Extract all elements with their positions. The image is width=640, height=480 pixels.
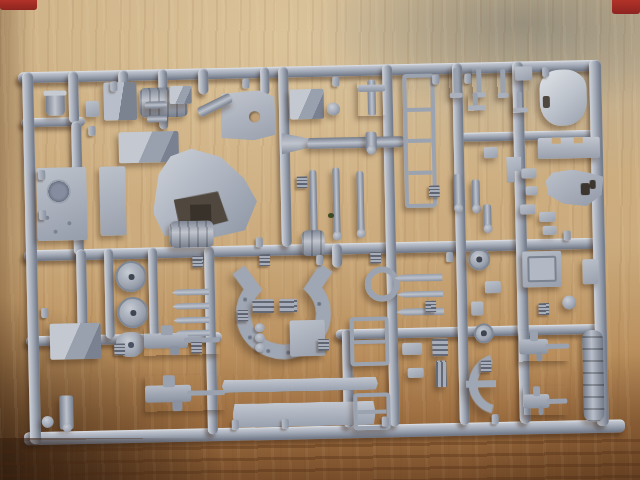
ejector-tab [318, 339, 329, 351]
sprue-gate-nub [41, 308, 48, 318]
runner-e-stub [260, 67, 270, 95]
cradle-hole [590, 180, 596, 189]
rod-knob [357, 229, 366, 238]
gun-body [145, 385, 192, 403]
ejector-tab [237, 309, 248, 321]
sprue-part-thin-rod-a [453, 174, 463, 210]
wheel-hub [481, 330, 487, 336]
sprue-part-bit-6 [402, 343, 422, 355]
top-rail [18, 60, 598, 84]
gun-magazine [160, 325, 172, 335]
sprue-part-bit-3 [520, 204, 535, 214]
sprue-part-road-wheel-1 [115, 261, 147, 293]
sprue-part-thin-rod-b [472, 179, 481, 210]
sprue-part-bit-1 [521, 168, 536, 178]
rod-knob [483, 224, 492, 233]
hook-horizontal [468, 105, 486, 110]
rod-knob [333, 231, 342, 240]
sprue-part-hook-3 [497, 69, 509, 98]
sprue-part-knob-disc [327, 102, 340, 115]
sprue-part-rib-drum [169, 220, 214, 248]
gun-barrel [187, 390, 225, 396]
rod-knob [62, 423, 71, 432]
wheel-runner-a [104, 248, 115, 338]
rod-knob [367, 146, 376, 155]
sprue-gate-nub [38, 170, 45, 180]
gun-grip [538, 406, 543, 415]
sprue-part-rod-3 [356, 171, 364, 235]
sprue-part-tool-box [50, 323, 102, 360]
sprue-part-dome-small [468, 248, 490, 270]
sprue-part-bracket-a [468, 92, 486, 110]
sprue-part-cross-rod-b [147, 115, 167, 122]
sprue-gate-nub [564, 230, 571, 240]
chain-link [255, 333, 265, 342]
gun-magazine [533, 386, 540, 396]
sprue-part-rib-block-b [279, 298, 297, 312]
sprue-part-gun-tube [308, 136, 404, 149]
sprue-gate-nub [232, 420, 239, 430]
ejector-tab [296, 176, 307, 188]
sprue-gate-nub [282, 419, 289, 429]
frame-rung [408, 170, 432, 175]
sprue-part-bit-5 [543, 226, 557, 235]
rod-knob [472, 204, 481, 213]
sprue-part-bit-8 [485, 281, 501, 293]
hook-horizontal [498, 93, 509, 98]
wheel-runner-b [148, 247, 159, 337]
gun-magazine [162, 375, 175, 388]
sprue-part-rod-2 [332, 167, 341, 237]
sprue-part-skirt-strip [222, 377, 378, 393]
sprue-part-rod-1 [309, 170, 317, 236]
sprue-part-block-part [169, 86, 191, 104]
ejector-tab [370, 252, 381, 264]
gun-barrel [545, 343, 569, 349]
sprue-part-pin-rod-3 [396, 307, 444, 316]
sprue-part-bit-9 [471, 301, 483, 315]
sprue-part-tow-spike-1 [172, 288, 209, 296]
cylinder-flange [43, 90, 66, 96]
sprue-part-knob-rod [59, 395, 74, 429]
plate-hole [249, 111, 260, 122]
sprue-part-upper-tab [484, 147, 498, 158]
frame-rung [354, 339, 385, 344]
sprue-part-open-bin [290, 89, 325, 120]
sprue-gate-nub [110, 81, 117, 91]
sprue-part-bit-7 [408, 368, 424, 378]
gun-grip [172, 400, 182, 411]
gun-grip [536, 352, 542, 361]
sprue-part-bit-4 [539, 212, 555, 222]
frame-rung [407, 107, 431, 112]
sprue-gate-nub [88, 126, 95, 136]
wheel-hub [476, 256, 482, 262]
sprue-part-rail-bracket [582, 259, 599, 284]
sprue-part-rib-block-a [252, 299, 274, 313]
rivet [67, 221, 71, 225]
gun-body [523, 394, 549, 408]
ejector-tab [259, 254, 270, 266]
sprue-part-square-box [522, 251, 562, 288]
sprue-part-mg-mount-lower [523, 386, 568, 416]
sprue-part-bracket-b [513, 91, 528, 112]
sprue-part-gearbox-cube [103, 82, 137, 121]
chain-link [255, 323, 265, 332]
sprue-part-hull-roof [539, 69, 587, 126]
sprue-part-road-wheel-2 [117, 297, 149, 329]
ejector-tab [429, 185, 440, 197]
ejector-tab [191, 342, 202, 354]
sprue-part-disc-part [474, 323, 494, 343]
gun-grip [170, 346, 179, 355]
sprue-gate-nub [242, 78, 249, 88]
wheel-hub [128, 273, 134, 279]
sprue-part-code-tab [435, 360, 447, 387]
sprue-gate-nub [316, 255, 323, 265]
sprue-gate-nub [492, 414, 499, 424]
sprue-part-ribbed-barrel [582, 330, 605, 422]
sprue-part-pin-rod-2 [397, 290, 443, 298]
sprue-gate-nub [432, 74, 439, 84]
sprue-part-mg-mount-upper [519, 330, 570, 362]
sprue-gate-nub [382, 416, 389, 426]
box-inner [527, 256, 557, 283]
keyhole-dot [127, 342, 133, 348]
wood-knot [328, 213, 334, 218]
sprue-part-cupola [45, 90, 65, 115]
plate-notch [574, 137, 583, 143]
sprue-gate-nub [464, 74, 471, 84]
roof-slot [543, 96, 551, 108]
ejector-tab [192, 255, 203, 267]
cradle-hole [580, 183, 589, 195]
red-mark-top-left [0, 0, 37, 10]
sprue-part-pin-rod-1 [395, 273, 443, 282]
sprue-part-bit-2 [526, 186, 538, 195]
sprue-part-hook-1 [449, 68, 463, 98]
hook-horizontal [513, 107, 528, 112]
gun-magazine [530, 330, 538, 341]
gun-body [519, 339, 548, 355]
gun-barrel [546, 398, 567, 403]
sprue-part-disc-right [562, 295, 576, 309]
sprue-part-glacis-plate [538, 137, 600, 159]
sprue-part-periscope [357, 79, 386, 116]
red-mark-top-right [612, 0, 640, 14]
sprue-part-small-bracket [86, 101, 99, 117]
sprue-part-tow-spike-3 [173, 316, 209, 324]
sprue-part-tow-spike-2 [172, 302, 209, 310]
sprue-part-link-chain [255, 323, 270, 353]
sprue-part-drum-wheel [302, 230, 326, 256]
sprue-part-mg-upper [144, 324, 221, 356]
tee-horizontal [357, 84, 385, 92]
sprue-part-letter-tab [432, 338, 448, 356]
runner-a-top [68, 71, 79, 123]
ejector-tab [480, 360, 491, 372]
sprue-part-disc-small [42, 416, 54, 428]
sprue-part-mg-lower [145, 374, 226, 412]
ejector-tab [538, 303, 549, 315]
gun-body [144, 333, 188, 348]
ejector-tab [425, 300, 436, 312]
frame-rung [358, 409, 387, 414]
sprue-part-thin-rod-c [483, 204, 492, 230]
frame-rung [408, 138, 432, 143]
plate-notch [551, 138, 560, 144]
sprue-gate-nub [256, 237, 263, 247]
sprue-part-step-plate [99, 166, 126, 236]
ejector-tab [114, 343, 125, 355]
sprue-gate-nub [332, 76, 339, 86]
sprue-part-tube-collar [365, 132, 376, 152]
sprue-gate-nub [446, 252, 453, 262]
chain-link [255, 343, 265, 352]
runner-c-top [198, 68, 209, 94]
sprue-part-small-plate [515, 66, 532, 80]
sprue-part-cross-rod-a [145, 101, 167, 108]
sprue-gate-nub [39, 210, 46, 220]
photo-canvas [0, 0, 640, 480]
hatch-circle [46, 179, 71, 204]
wheel-hub [130, 309, 136, 315]
sprue-gate-nub [542, 67, 549, 77]
sprue-part-frame-small [350, 316, 390, 366]
rivet [54, 230, 58, 234]
hook-horizontal [450, 93, 463, 98]
sprue-frame [12, 50, 620, 448]
